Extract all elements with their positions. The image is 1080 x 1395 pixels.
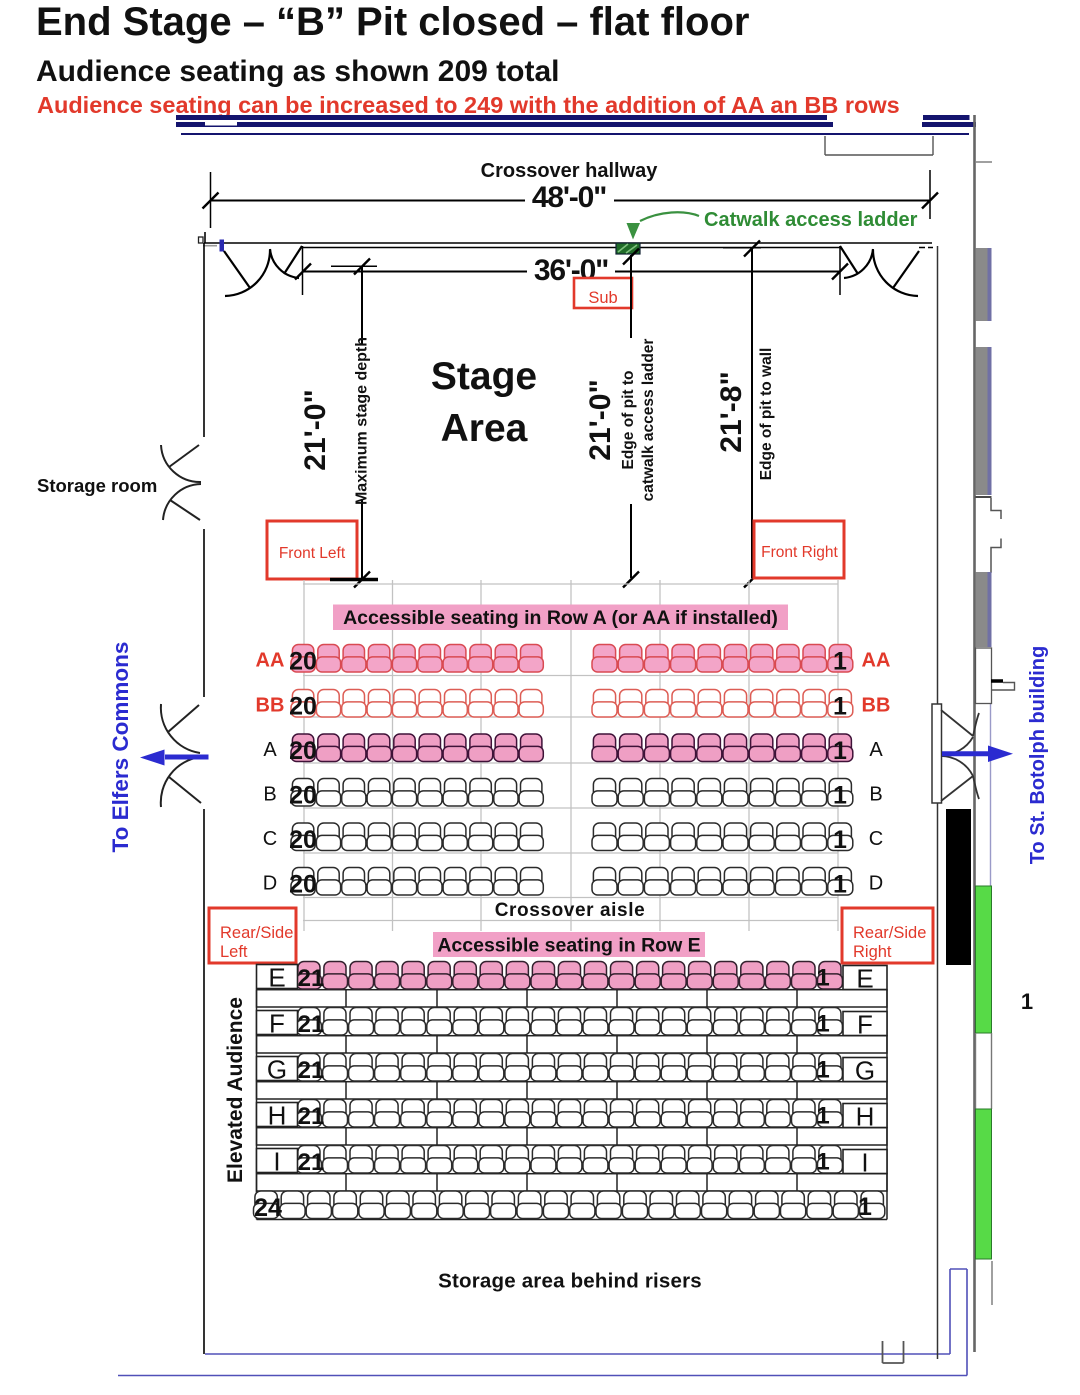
- svg-text:Maximum stage depth: Maximum stage depth: [354, 337, 371, 505]
- svg-text:Stage: Stage: [431, 355, 537, 398]
- svg-text:AA: AA: [862, 650, 891, 672]
- svg-text:I: I: [273, 1147, 280, 1177]
- svg-text:1: 1: [816, 965, 829, 992]
- svg-text:Catwalk access ladder: Catwalk access ladder: [704, 209, 918, 231]
- svg-text:21: 21: [298, 1149, 325, 1176]
- svg-text:20: 20: [289, 782, 317, 810]
- svg-text:Storage area behind risers: Storage area behind risers: [438, 1270, 702, 1293]
- svg-text:H: H: [856, 1102, 875, 1132]
- svg-text:21: 21: [298, 1011, 325, 1038]
- svg-text:20: 20: [289, 826, 317, 854]
- svg-text:1: 1: [833, 648, 847, 676]
- svg-text:BB: BB: [862, 695, 891, 717]
- svg-text:21'-0": 21'-0": [584, 379, 617, 460]
- svg-text:C: C: [869, 828, 883, 850]
- svg-text:To St. Botolph building: To St. Botolph building: [1027, 646, 1049, 864]
- svg-text:F: F: [269, 1009, 285, 1039]
- svg-text:Front Left: Front Left: [279, 545, 346, 562]
- svg-text:1: 1: [833, 693, 847, 721]
- svg-text:Elevated Audience: Elevated Audience: [224, 997, 247, 1183]
- svg-text:E: E: [856, 964, 873, 994]
- svg-text:To Elfers Commons: To Elfers Commons: [108, 642, 133, 853]
- svg-text:Edge of pit to: Edge of pit to: [620, 370, 637, 469]
- svg-text:G: G: [267, 1055, 287, 1085]
- svg-text:B: B: [869, 784, 882, 806]
- svg-text:Crossover hallway: Crossover hallway: [481, 160, 659, 182]
- svg-text:Audience seating can be increa: Audience seating can be increased to 249…: [37, 92, 900, 118]
- svg-text:1: 1: [858, 1193, 872, 1221]
- svg-text:E: E: [268, 963, 285, 993]
- svg-text:H: H: [268, 1101, 287, 1131]
- svg-text:Accessible seating in Row A (o: Accessible seating in Row A (or AA if in…: [343, 607, 778, 629]
- svg-text:1: 1: [816, 1149, 829, 1176]
- svg-text:A: A: [869, 739, 883, 761]
- svg-text:AA: AA: [256, 650, 285, 672]
- svg-text:B: B: [263, 784, 276, 806]
- svg-text:Storage room: Storage room: [37, 475, 157, 496]
- svg-text:1: 1: [833, 826, 847, 854]
- svg-text:1: 1: [816, 1057, 829, 1084]
- svg-text:Audience seating as shown 209: Audience seating as shown 209 total: [36, 55, 559, 88]
- svg-text:Rear/Side: Rear/Side: [220, 924, 293, 942]
- svg-text:21'-0": 21'-0": [299, 389, 332, 470]
- svg-text:End Stage – “B” Pit closed – f: End Stage – “B” Pit closed – flat floor: [36, 0, 749, 44]
- svg-text:Rear/Side: Rear/Side: [853, 924, 926, 942]
- svg-text:D: D: [869, 873, 883, 895]
- svg-text:21: 21: [298, 1103, 325, 1130]
- svg-text:1: 1: [816, 1011, 829, 1038]
- svg-text:1: 1: [833, 871, 847, 899]
- svg-text:21: 21: [298, 965, 325, 992]
- svg-text:20: 20: [289, 693, 317, 721]
- svg-text:20: 20: [289, 737, 317, 765]
- svg-text:catwalk access ladder: catwalk access ladder: [640, 339, 657, 502]
- svg-text:1: 1: [833, 782, 847, 810]
- svg-text:1: 1: [816, 1103, 829, 1130]
- svg-text:F: F: [857, 1010, 873, 1040]
- svg-text:24: 24: [254, 1194, 282, 1222]
- svg-text:G: G: [855, 1056, 875, 1086]
- svg-text:21: 21: [298, 1057, 325, 1084]
- svg-text:Left: Left: [220, 943, 248, 961]
- svg-text:1: 1: [833, 737, 847, 765]
- svg-text:Right: Right: [853, 943, 892, 961]
- svg-text:Area: Area: [441, 407, 528, 450]
- svg-text:Front Right: Front Right: [761, 544, 838, 561]
- svg-text:BB: BB: [256, 695, 285, 717]
- svg-text:Edge of pit to wall: Edge of pit to wall: [758, 348, 775, 481]
- svg-text:C: C: [263, 828, 277, 850]
- svg-text:Crossover aisle: Crossover aisle: [495, 900, 646, 921]
- svg-text:20: 20: [289, 871, 317, 899]
- svg-text:Sub: Sub: [588, 289, 617, 307]
- svg-text:Accessible seating in Row E: Accessible seating in Row E: [437, 935, 700, 957]
- svg-text:48'-0": 48'-0": [532, 181, 606, 214]
- svg-text:20: 20: [289, 648, 317, 676]
- svg-text:I: I: [861, 1148, 868, 1178]
- svg-text:A: A: [263, 739, 277, 761]
- svg-text:21'-8": 21'-8": [715, 371, 748, 452]
- svg-text:D: D: [263, 873, 277, 895]
- svg-text:1: 1: [1021, 989, 1033, 1014]
